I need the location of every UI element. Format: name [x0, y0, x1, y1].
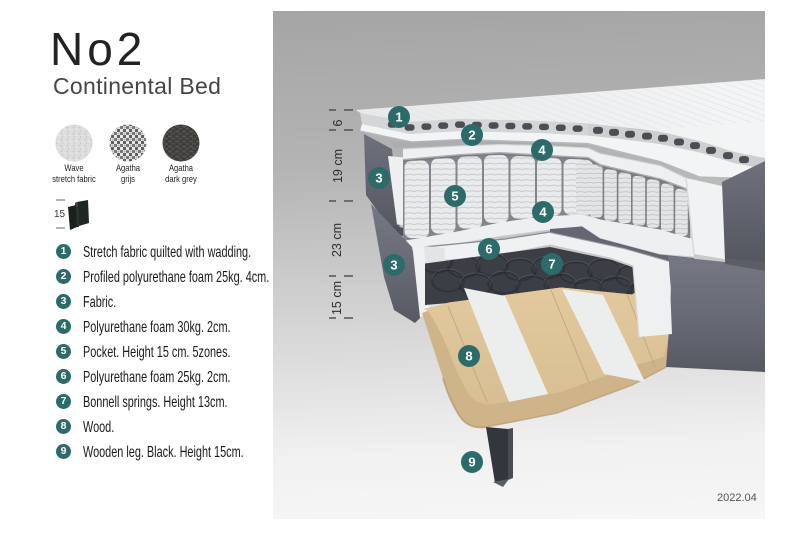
svg-text:23 cm: 23 cm	[330, 223, 344, 257]
svg-text:7: 7	[548, 257, 555, 272]
svg-text:5: 5	[451, 189, 458, 204]
svg-text:4: 4	[539, 205, 547, 220]
svg-text:15 cm: 15 cm	[330, 281, 344, 315]
svg-text:6: 6	[485, 242, 492, 257]
svg-text:19 cm: 19 cm	[331, 149, 345, 183]
svg-text:1: 1	[395, 110, 402, 125]
svg-text:3: 3	[375, 171, 382, 186]
svg-text:3: 3	[390, 258, 397, 273]
svg-text:4: 4	[538, 143, 546, 158]
svg-text:8: 8	[465, 349, 472, 364]
svg-text:9: 9	[468, 455, 475, 470]
svg-text:6: 6	[331, 119, 345, 126]
svg-text:2: 2	[468, 128, 475, 143]
